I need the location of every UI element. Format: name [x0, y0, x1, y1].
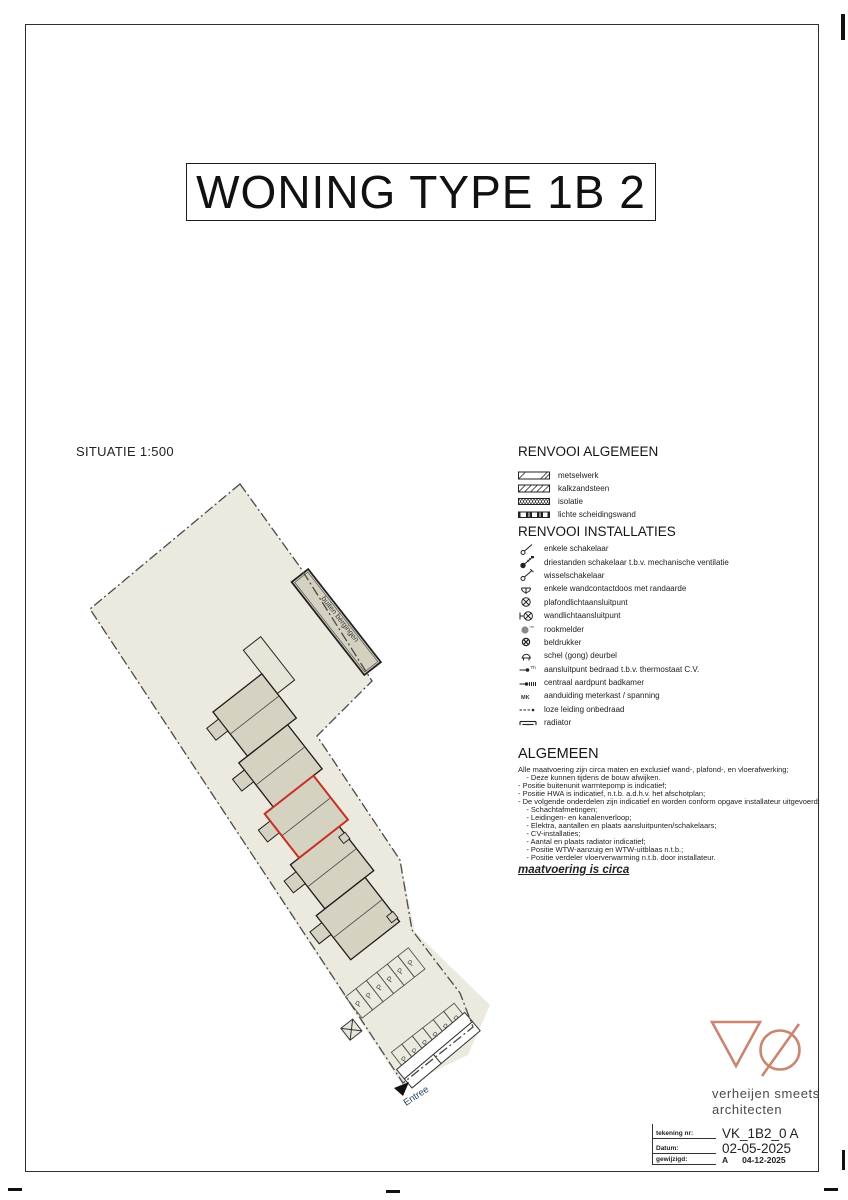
- legend-item: beldrukker: [518, 636, 818, 649]
- wall-light-icon: [518, 609, 544, 623]
- table-row: Datum: 02-05-2025: [653, 1139, 818, 1154]
- date-value: 02-05-2025: [716, 1141, 791, 1156]
- date-label: Datum:: [653, 1143, 716, 1154]
- maatvoering-note: maatvoering is circa: [518, 864, 818, 876]
- legend-item: rm rookmelder: [518, 622, 818, 635]
- entree-arrow: [394, 1082, 409, 1096]
- architect-logo: [698, 1014, 814, 1082]
- trim-mark: [842, 1150, 845, 1170]
- legend-item: metselwerk: [518, 469, 818, 482]
- lichte-scheidingswand-hatch-icon: [518, 510, 558, 520]
- situatie-scale-label: SITUATIE 1:500: [76, 444, 174, 459]
- site-plan: buiten bergingen: [70, 470, 490, 1120]
- ceiling-light-icon: [518, 595, 544, 609]
- smoke-detector-icon: rm: [518, 622, 544, 636]
- kalkzandsteen-hatch-icon: [518, 484, 558, 494]
- legend-item: kalkzandsteen: [518, 482, 818, 495]
- drawing-title-box: WONING TYPE 1B 2: [186, 163, 656, 221]
- drawing-title: WONING TYPE 1B 2: [196, 165, 646, 219]
- switch-single-icon: [518, 542, 544, 556]
- legend-item: isolatie: [518, 495, 818, 508]
- legend-item: MK aanduiding meterkast / spanning: [518, 689, 818, 702]
- svg-text:Th: Th: [531, 665, 537, 670]
- trim-mark: [824, 1188, 838, 1191]
- renvooi-algemeen-heading: RENVOOI ALGEMEEN: [518, 444, 818, 459]
- isolatie-hatch-icon: [518, 497, 558, 507]
- firm-name-line2: architecten: [712, 1102, 820, 1118]
- trim-mark: [386, 1190, 400, 1193]
- firm-name: verheijen smeets architecten: [712, 1086, 820, 1118]
- meter-cabinet-icon: MK: [518, 689, 544, 703]
- legend-item: wisselschakelaar: [518, 569, 818, 582]
- legend-item: Th aansluitpunt bedraad t.b.v. thermosta…: [518, 663, 818, 676]
- socket-earthed-icon: [518, 582, 544, 596]
- legend-item: radiator: [518, 716, 818, 729]
- drawing-number-label: tekening nr:: [653, 1128, 716, 1139]
- empty-conduit-icon: [518, 702, 544, 716]
- svg-text:rm: rm: [530, 624, 535, 629]
- thermostat-connection-icon: Th: [518, 662, 544, 676]
- logo-triangle: [712, 1022, 760, 1066]
- title-block-table: tekening nr: VK_1B2_0 A Datum: 02-05-202…: [652, 1124, 818, 1165]
- trim-mark: [8, 1188, 22, 1191]
- legend-item: enkele wandcontactdoos met randaarde: [518, 582, 818, 595]
- svg-text:MK: MK: [521, 695, 530, 701]
- legend-item: driestanden schakelaar t.b.v. mechanisch…: [518, 555, 818, 568]
- firm-name-line1: verheijen smeets: [712, 1086, 820, 1102]
- revision-value: A04-12-2025: [716, 1155, 786, 1165]
- trim-mark: [841, 14, 845, 40]
- legend-item: schel (gong) deurbel: [518, 649, 818, 662]
- revision-label: gewijzigd:: [653, 1154, 716, 1165]
- renvooi-installaties-heading: RENVOOI INSTALLATIES: [518, 524, 818, 539]
- legend-item: lichte scheidingswand: [518, 508, 818, 521]
- drawing-number-value: VK_1B2_0 A: [716, 1126, 799, 1141]
- radiator-icon: [518, 716, 544, 730]
- note-line: - Positie verdeler vloerverwarming n.t.b…: [518, 854, 818, 862]
- switch-two-way-icon: [518, 568, 544, 582]
- table-row: tekening nr: VK_1B2_0 A: [653, 1124, 818, 1139]
- earth-point-icon: [518, 676, 544, 690]
- legend-item: centraal aardpunt badkamer: [518, 676, 818, 689]
- legend-item: enkele schakelaar: [518, 542, 818, 555]
- algemeen-notes: Alle maatvoering zijn circa maten en exc…: [518, 766, 818, 862]
- doorbell-gong-icon: [518, 649, 544, 663]
- table-row: gewijzigd: A04-12-2025: [653, 1154, 818, 1165]
- drawing-sheet: WONING TYPE 1B 2 SITUATIE 1:500 buiten b…: [0, 0, 848, 1200]
- metselwerk-hatch-icon: [518, 471, 558, 481]
- crossed-box-symbol: [341, 1019, 362, 1040]
- algemeen-heading: ALGEMEEN: [518, 746, 818, 762]
- bell-push-icon: [518, 635, 544, 649]
- legend-item: plafondlichtaansluitpunt: [518, 596, 818, 609]
- legend-item: wandlichtaansluitpunt: [518, 609, 818, 622]
- switch-three-position-icon: [518, 555, 544, 569]
- legend-item: loze leiding onbedraad: [518, 703, 818, 716]
